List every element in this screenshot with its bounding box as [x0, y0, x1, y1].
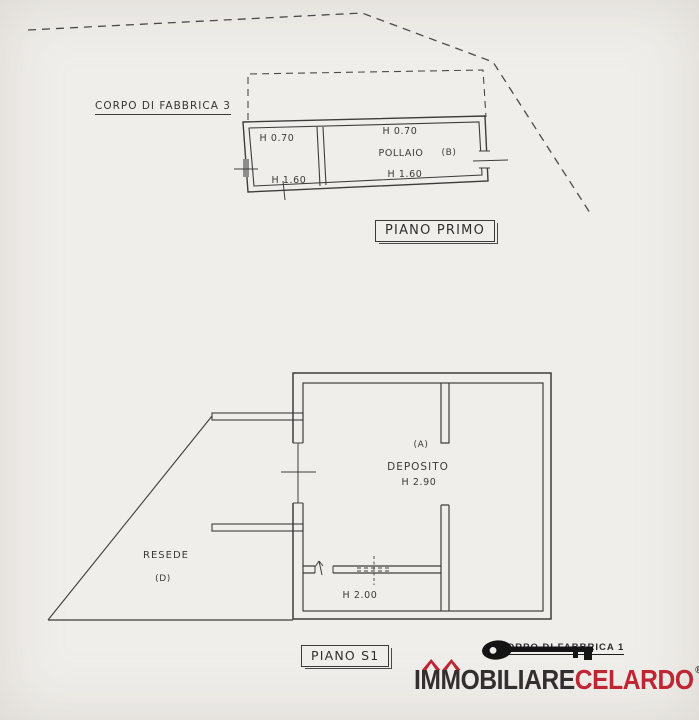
- immobiliare-celardo-logo: IMMOBILIARE CELARDO ®: [414, 664, 699, 696]
- logo-text-celardo: CELARDO: [575, 664, 694, 696]
- key-icon: [481, 636, 611, 666]
- upper-plan-filled-wall-segment: [243, 159, 249, 177]
- upper-main-room-unit: (B): [442, 148, 457, 158]
- deposito-unit-label: (A): [414, 440, 429, 450]
- resede-yard-lines: [48, 413, 303, 620]
- resede-yard-unit: (D): [155, 574, 171, 584]
- upper-plan-right-door-gap: [478, 151, 490, 168]
- resede-diagonal-boundary: [48, 416, 212, 620]
- interior-wall-upper: [441, 383, 449, 443]
- upper-left-room-height-bottom: H 1.60: [272, 175, 307, 186]
- upper-main-room-name: POLLAIO: [379, 148, 424, 159]
- resede-yard-name: RESEDE: [143, 550, 189, 561]
- upper-left-room-height-top: H 0.70: [260, 133, 295, 144]
- storage-room-height: H 2.00: [343, 590, 378, 601]
- upper-main-room-height-bottom: H 1.60: [388, 169, 423, 180]
- resede-upper-low-wall: [212, 413, 303, 420]
- storage-door-arrow: [315, 561, 323, 575]
- resede-lower-low-wall: [212, 524, 303, 531]
- upper-plan-dashed-outline: [248, 70, 486, 120]
- deposito-room-name: DEPOSITO: [387, 461, 449, 473]
- upper-plan-divider-wall: [317, 127, 326, 186]
- corpo-di-fabbrica-3-label: CORPO DI FABBRICA 3: [95, 100, 231, 115]
- upper-main-room-height-top: H 0.70: [383, 126, 418, 137]
- scanned-floor-plan-page: CORPO DI FABBRICA 3 H 0.70 H 1.60 H 0.70…: [0, 0, 699, 720]
- upper-plan-walls: [234, 116, 508, 200]
- piano-primo-title-box: PIANO PRIMO: [375, 220, 495, 242]
- deposito-room-height: H 2.90: [402, 477, 437, 488]
- piano-s1-title-box: PIANO S1: [301, 645, 389, 667]
- registered-trademark-symbol: ®: [695, 665, 699, 676]
- lower-plan-walls: [281, 373, 551, 619]
